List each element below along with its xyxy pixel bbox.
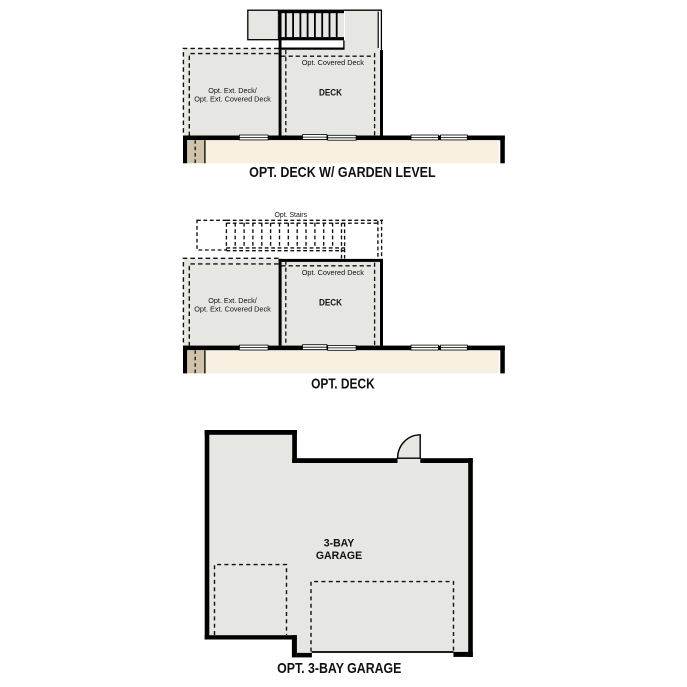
- svg-text:Opt. Covered Deck: Opt. Covered Deck: [302, 58, 364, 67]
- svg-text:OPT. DECK W/ GARDEN LEVEL: OPT. DECK W/ GARDEN LEVEL: [249, 165, 436, 181]
- svg-text:Opt. Stairs: Opt. Stairs: [275, 210, 308, 219]
- svg-text:3-BAY: 3-BAY: [324, 537, 355, 549]
- svg-text:DECK: DECK: [319, 298, 342, 308]
- svg-text:Opt. Ext. Covered Deck: Opt. Ext. Covered Deck: [194, 95, 271, 104]
- svg-text:Opt. Ext. Covered Deck: Opt. Ext. Covered Deck: [194, 305, 271, 314]
- svg-text:Opt. Covered Deck: Opt. Covered Deck: [302, 268, 364, 277]
- svg-text:GARAGE: GARAGE: [316, 550, 362, 562]
- svg-text:OPT. DECK: OPT. DECK: [311, 376, 375, 392]
- svg-text:OPT. 3-BAY GARAGE: OPT. 3-BAY GARAGE: [277, 661, 401, 677]
- svg-text:DECK: DECK: [319, 88, 342, 98]
